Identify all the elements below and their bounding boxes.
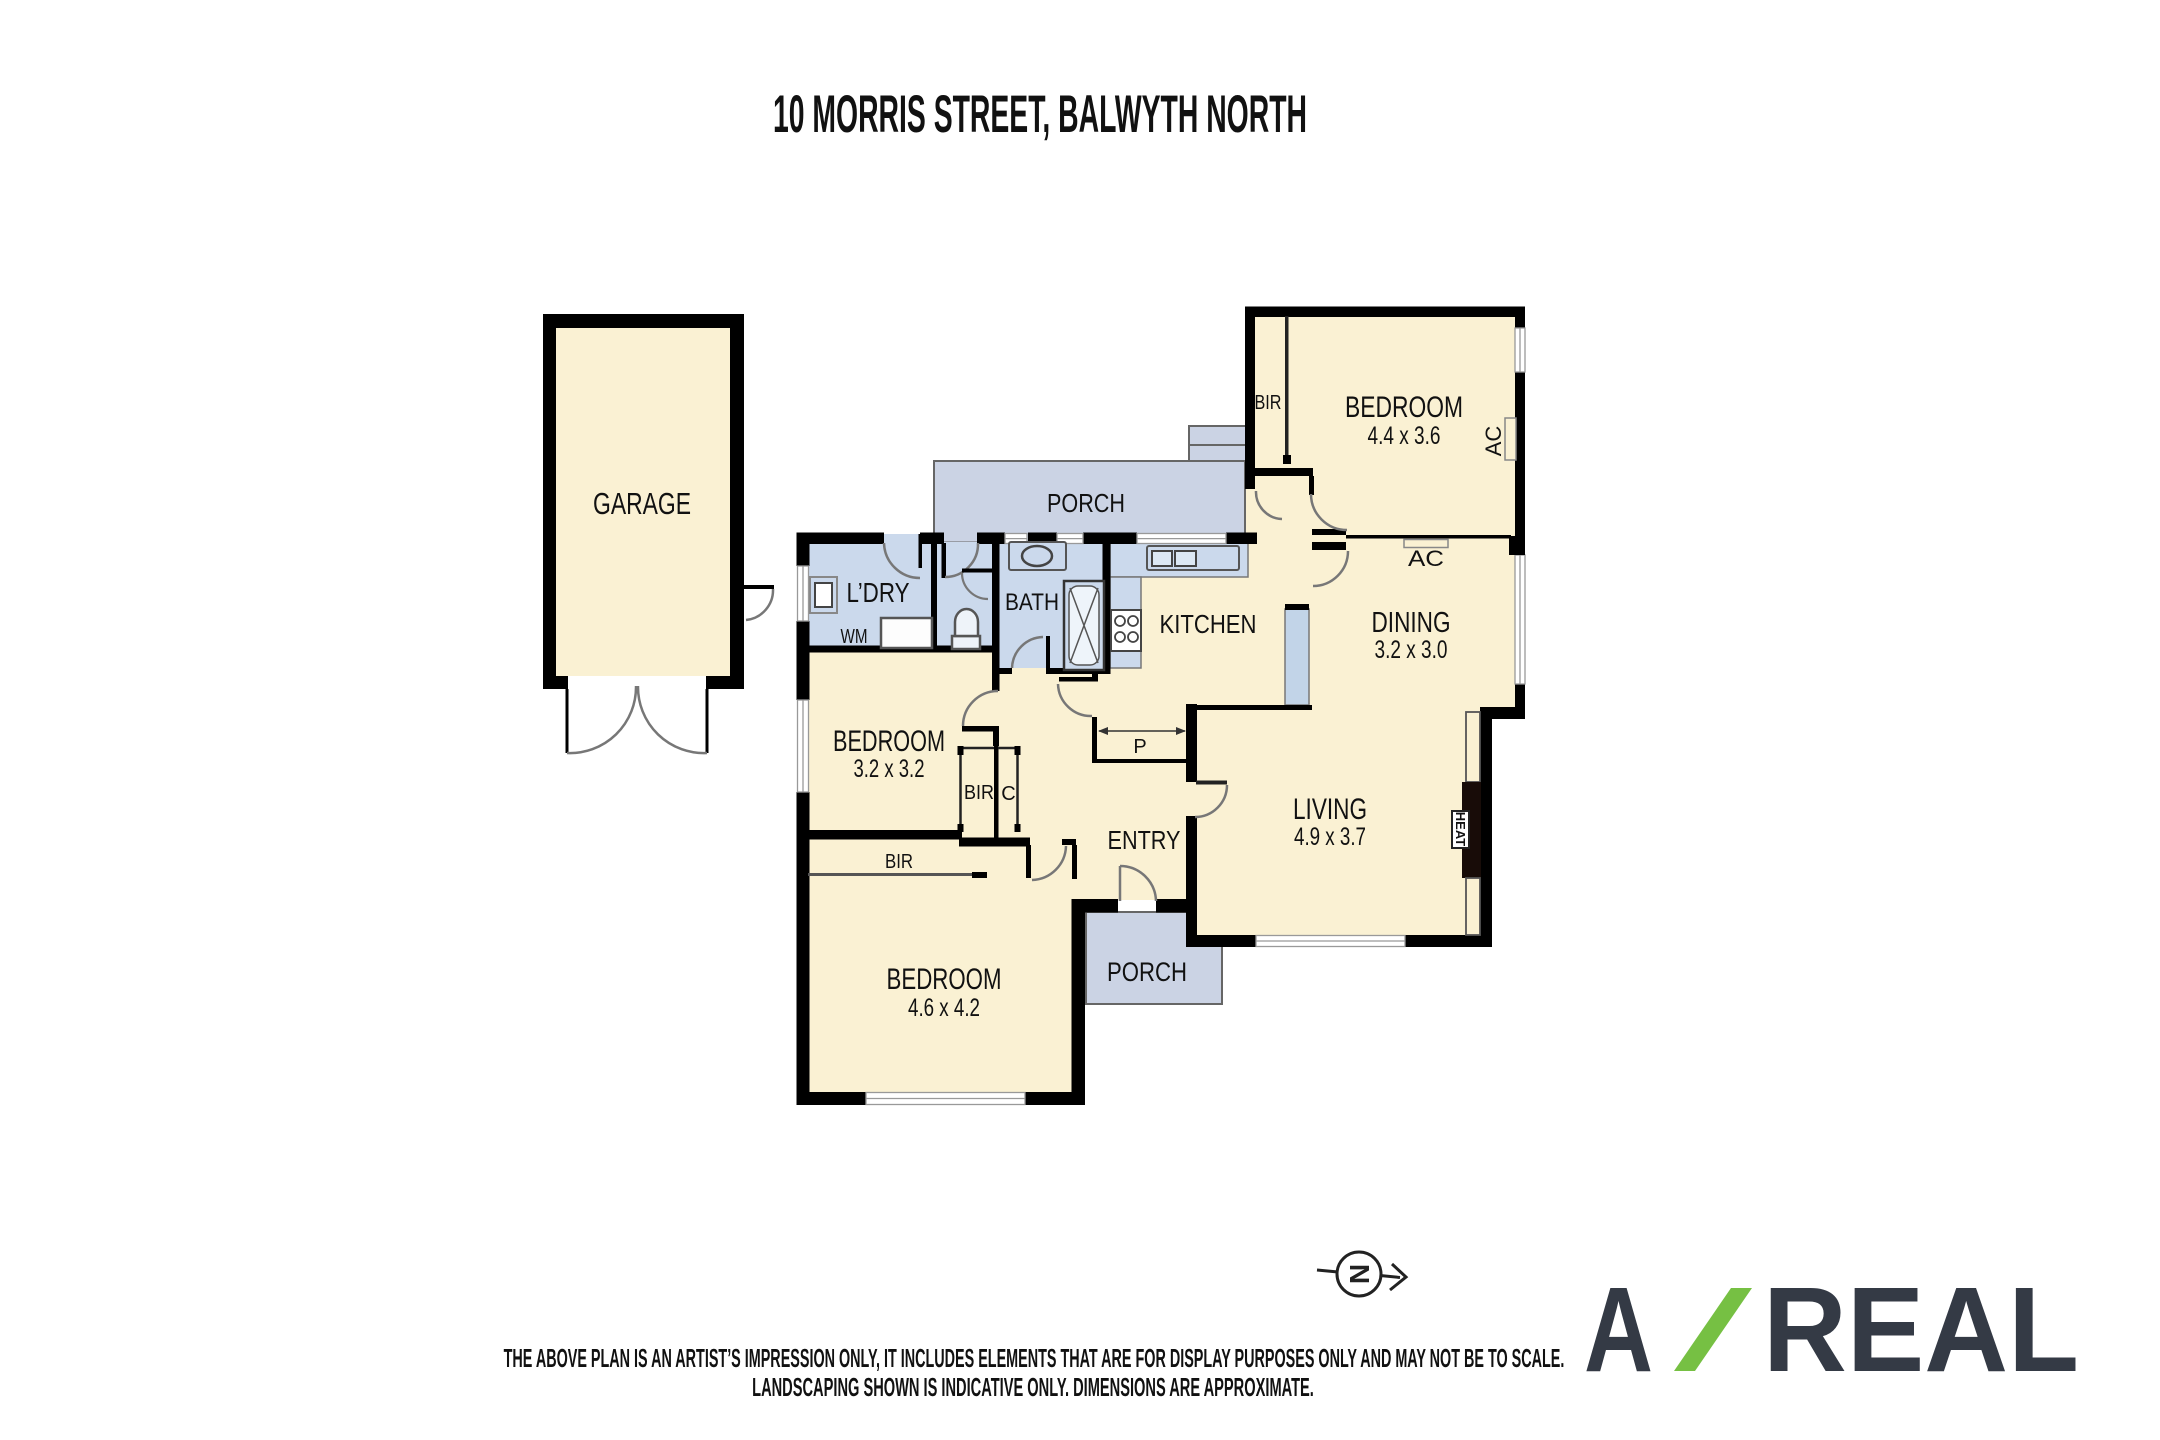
svg-text:LIVING: LIVING — [1293, 793, 1367, 826]
svg-text:BATH: BATH — [1005, 589, 1059, 616]
svg-text:4.4 x 3.6: 4.4 x 3.6 — [1368, 422, 1441, 450]
svg-text:L’DRY: L’DRY — [847, 577, 910, 608]
svg-text:PORCH: PORCH — [1047, 488, 1125, 518]
svg-text:GARAGE: GARAGE — [593, 486, 691, 521]
svg-text:A: A — [1584, 1262, 1653, 1397]
svg-text:WM: WM — [841, 626, 868, 648]
svg-text:HEAT: HEAT — [1453, 812, 1468, 846]
svg-text:3.2 x 3.2: 3.2 x 3.2 — [854, 755, 925, 783]
svg-text:DINING: DINING — [1372, 607, 1451, 639]
svg-text:REAL: REAL — [1763, 1261, 2079, 1397]
svg-text:THE ABOVE PLAN IS AN ARTIST’S: THE ABOVE PLAN IS AN ARTIST’S IMPRESSION… — [504, 1345, 1565, 1373]
svg-text:C: C — [1001, 783, 1015, 805]
svg-text:KITCHEN: KITCHEN — [1160, 609, 1257, 639]
svg-text:BEDROOM: BEDROOM — [1345, 391, 1463, 424]
svg-text:BEDROOM: BEDROOM — [833, 725, 945, 758]
svg-text:3.2 x 3.0: 3.2 x 3.0 — [1375, 636, 1448, 664]
svg-text:N: N — [1344, 1264, 1375, 1284]
svg-text:LANDSCAPING SHOWN IS INDICATIV: LANDSCAPING SHOWN IS INDICATIVE ONLY. DI… — [752, 1374, 1314, 1402]
svg-text:AC: AC — [1408, 546, 1444, 571]
svg-text:BIR: BIR — [964, 782, 994, 804]
svg-text:10 MORRIS STREET, BALWYTH NORT: 10 MORRIS STREET, BALWYTH NORTH — [773, 86, 1307, 145]
svg-text:BIR: BIR — [1255, 392, 1282, 414]
svg-text:BEDROOM: BEDROOM — [887, 963, 1002, 996]
svg-text:AC: AC — [1481, 426, 1506, 457]
svg-text:PORCH: PORCH — [1107, 957, 1187, 987]
svg-text:4.6 x 4.2: 4.6 x 4.2 — [908, 994, 980, 1022]
svg-text:4.9 x 3.7: 4.9 x 3.7 — [1294, 823, 1366, 851]
svg-text:BIR: BIR — [885, 851, 913, 873]
svg-text:ENTRY: ENTRY — [1108, 825, 1181, 855]
svg-text:P: P — [1133, 736, 1146, 758]
